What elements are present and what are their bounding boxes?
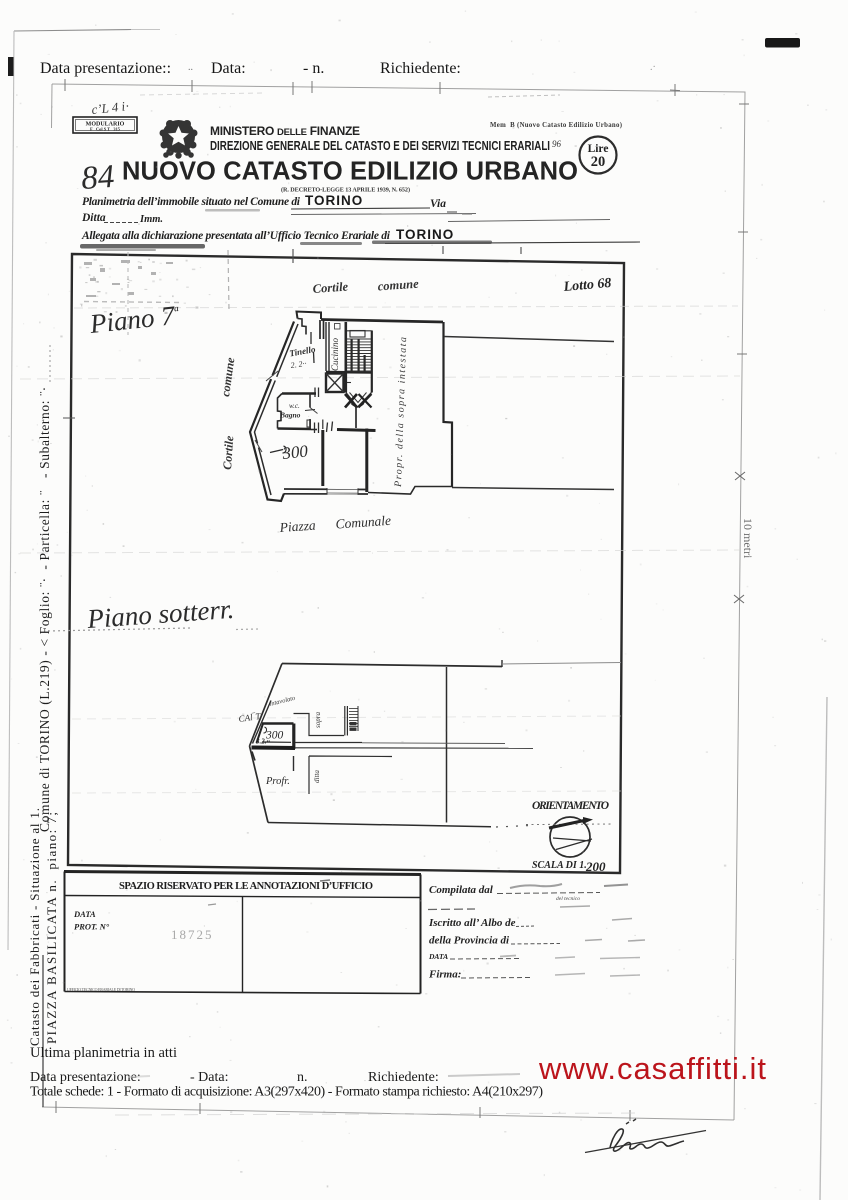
svg-text:SPAZIO RISERVATO PER LE ANNOTA: SPAZIO RISERVATO PER LE ANNOTAZIONI D’UF…	[119, 881, 373, 892]
svg-text:PROT. N°: PROT. N°	[74, 922, 110, 932]
svg-text:Iscritto all’ Albo de: Iscritto all’ Albo de	[428, 917, 516, 929]
svg-text:Data:: Data:	[211, 60, 246, 77]
svg-text:SCALA DI 1.: SCALA DI 1.	[532, 860, 587, 871]
svg-text:3.2.··: 3.2.··	[255, 738, 270, 746]
svg-text:UFFICIO TECNICO ERARIALE DI TO: UFFICIO TECNICO ERARIALE DI TORINO	[67, 987, 135, 992]
svg-text:DATA: DATA	[428, 952, 448, 961]
svg-text:NUOVO CATASTO EDILIZIO URBANO: NUOVO CATASTO EDILIZIO URBANO	[122, 158, 578, 186]
svg-text:comune: comune	[377, 277, 419, 294]
svg-text:Cortile: Cortile	[220, 435, 236, 471]
svg-text:TORINO: TORINO	[305, 193, 363, 208]
svg-text:TORINO: TORINO	[396, 227, 454, 242]
svg-text:Piano 7ª: Piano 7ª	[87, 300, 180, 339]
svg-text:w.c.: w.c.	[289, 402, 300, 410]
svg-text:Cortile: Cortile	[312, 280, 349, 296]
svg-text:ditta: ditta	[313, 770, 321, 783]
svg-text:..: ..	[188, 62, 193, 73]
svg-text:Allegata alla dichiarazione pr: Allegata alla dichiarazione presentata a…	[81, 230, 391, 242]
svg-text:84: 84	[80, 159, 115, 197]
svg-text:- Data:: - Data:	[190, 1070, 228, 1085]
svg-text:Lotto 68: Lotto 68	[562, 276, 612, 295]
svg-text:DIREZIONE GENERALE DEL CATASTO: DIREZIONE GENERALE DEL CATASTO E DEI SER…	[210, 139, 550, 153]
svg-text:Propr. della sopra intestata: Propr. della sopra intestata	[393, 337, 409, 488]
svg-text:Ultima planimetria in atti: Ultima planimetria in atti	[30, 1045, 177, 1061]
svg-text:comune: comune	[218, 356, 237, 398]
svg-text:10 metri: 10 metri	[741, 518, 755, 559]
svg-text:Data presentazione:: Data presentazione:	[30, 1070, 141, 1085]
svg-text:Ditta: Ditta	[81, 212, 106, 224]
svg-text:.·: .·	[650, 62, 656, 73]
svg-text:n.: n.	[297, 1070, 308, 1085]
svg-text:Firma:: Firma:	[428, 969, 461, 981]
svg-text:c’L 4 i·: c’L 4 i·	[91, 98, 130, 117]
svg-text:Comunale: Comunale	[335, 513, 391, 532]
svg-text:Cucinino: Cucinino	[330, 338, 340, 371]
svg-text:- n.: - n.	[303, 60, 324, 77]
svg-text:Via: Via	[430, 198, 446, 210]
svg-text:Profr.: Profr.	[265, 776, 290, 787]
svg-text:ORIENTAMENTO: ORIENTAMENTO	[532, 800, 609, 812]
svg-text:Comune di TORINO (L.219) - < F: Comune di TORINO (L.219) - < Foglio: ¨· …	[37, 387, 52, 832]
svg-text:2. 2··: 2. 2··	[290, 359, 307, 370]
svg-text:18725: 18725	[171, 927, 214, 942]
svg-text:Richiedente:: Richiedente:	[368, 1070, 439, 1085]
svg-text:200: 200	[585, 859, 606, 874]
svg-text:Mem B (Nuovo Catasto Edilizio: Mem B (Nuovo Catasto Edilizio Urbano)	[490, 122, 622, 129]
svg-text:MINISTERO DELLE FINANZE: MINISTERO DELLE FINANZE	[210, 124, 360, 138]
svg-text:Piazza: Piazza	[278, 518, 316, 536]
svg-text:DATA: DATA	[73, 909, 96, 919]
svg-text:20: 20	[591, 154, 606, 170]
svg-text:Bagno: Bagno	[279, 411, 301, 420]
svg-text:Data presentazione::: Data presentazione::	[40, 60, 171, 77]
svg-text:PIAZZA BASILICATA n. piano: 7: PIAZZA BASILICATA n. piano: 7;	[44, 812, 59, 1044]
svg-text:Compilata dal: Compilata dal	[429, 884, 494, 896]
svg-text:96: 96	[552, 139, 562, 149]
svg-text:sopra: sopra	[314, 712, 322, 728]
svg-text:del tecnico: del tecnico	[556, 896, 580, 902]
svg-text:www.casaffitti.it: www.casaffitti.it	[538, 1051, 766, 1086]
svg-text:Totale schede: 1 - Formato di: Totale schede: 1 - Formato di acquisizio…	[30, 1085, 543, 1100]
svg-text:Richiedente:: Richiedente:	[380, 60, 461, 77]
svg-text:intavolato: intavolato	[269, 695, 297, 708]
svg-text:della Provincia di: della Provincia di	[429, 935, 510, 947]
svg-text:Planimetria dell’immobile situ: Planimetria dell’immobile situato nel Co…	[82, 196, 301, 208]
svg-text:Tinello: Tinello	[289, 344, 317, 358]
svg-text:F Col S T 315: F Col S T 315	[90, 127, 121, 132]
svg-text:Catasto dei Fabbricati - Situa: Catasto dei Fabbricati - Situazione al 1…	[27, 808, 42, 1046]
svg-text:Imm.: Imm.	[139, 214, 163, 225]
svg-text:Piano sotterr.: Piano sotterr.	[85, 594, 235, 634]
